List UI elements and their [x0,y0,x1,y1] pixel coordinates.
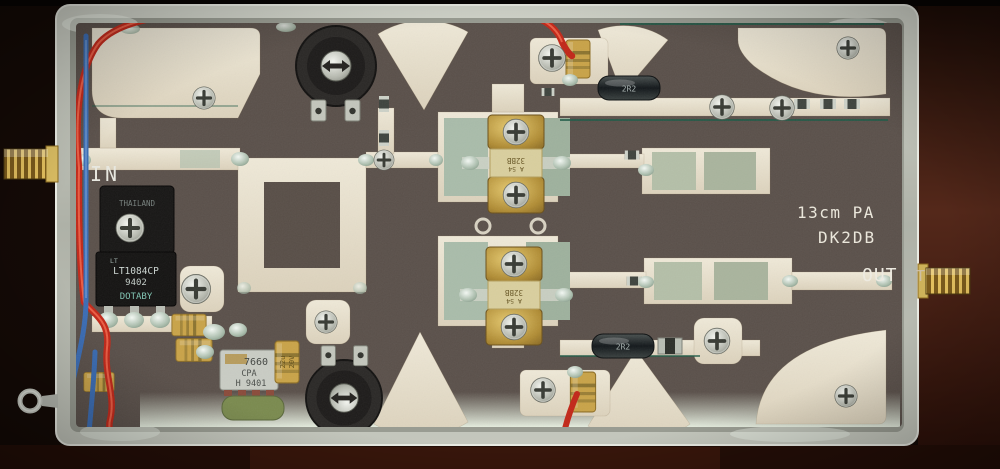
photo-of-rf-amplifier-board: 2R2 A 54 32BB [0,0,1000,469]
photo-canvas: 2R2 A 54 32BB [0,0,1000,469]
photo-vignette [0,0,1000,469]
